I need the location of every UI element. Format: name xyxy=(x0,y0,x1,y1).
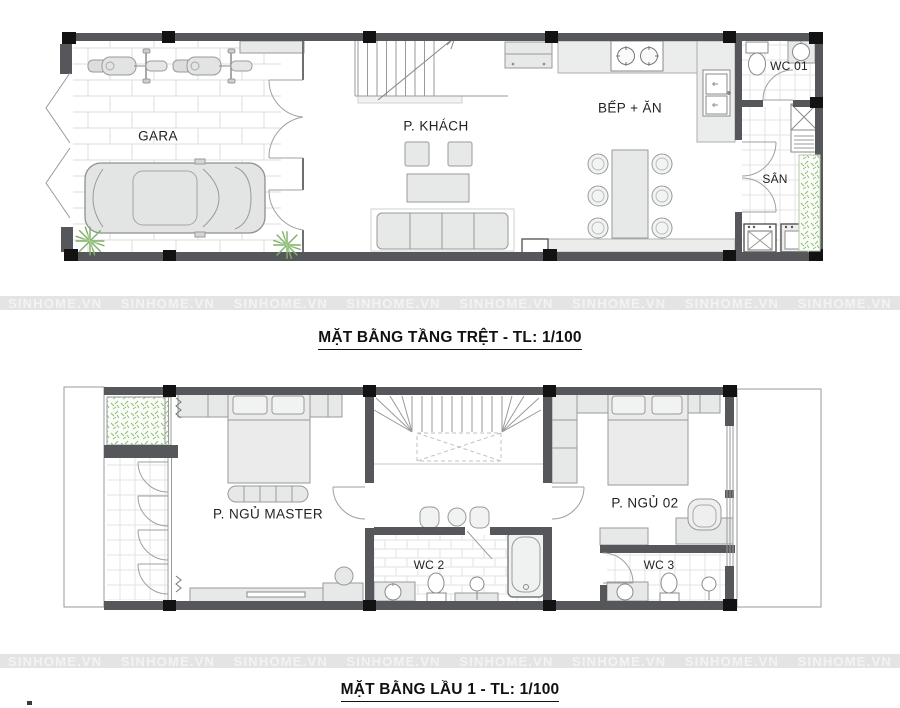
watermark-band-bottom: SINHOME.VN SINHOME.VN SINHOME.VN SINHOME… xyxy=(0,654,900,668)
watermark-text: SINHOME.VN xyxy=(346,655,440,668)
sofa xyxy=(371,209,514,251)
car xyxy=(85,159,265,237)
watermark-text: SINHOME.VN xyxy=(459,655,553,668)
watermark-text: SINHOME.VN xyxy=(121,655,215,668)
room-label-yard: SÂN xyxy=(762,172,787,186)
plant-box xyxy=(107,397,171,445)
wc3-shelf xyxy=(600,528,648,545)
ground-floor-title-text: MẶT BẰNG TẦNG TRỆT - TL: 1/100 xyxy=(318,329,581,350)
room-label-wc2: WC 2 xyxy=(414,558,445,572)
ground-floor-title: MẶT BẰNG TẦNG TRỆT - TL: 1/100 xyxy=(0,329,900,350)
room-label-wc3: WC 3 xyxy=(644,558,675,572)
first-floor-plan xyxy=(64,385,821,611)
floor-plan-drawing xyxy=(0,0,900,708)
staircase-ground xyxy=(355,37,508,103)
master-cabinet xyxy=(190,588,325,602)
right-void xyxy=(737,389,821,607)
desk xyxy=(676,499,733,544)
window-bench xyxy=(548,239,735,252)
first-floor-title-text: MẶT BẰNG LẦU 1 - TL: 1/100 xyxy=(341,681,560,702)
watermark-text: SINHOME.VN xyxy=(8,297,102,310)
bedroom2-door xyxy=(552,487,584,519)
watermark-text: SINHOME.VN xyxy=(685,297,779,310)
floor-plan-page: GARA P. KHÁCH BẾP + ĂN WC 01 SÂN P. NGỦ … xyxy=(0,0,900,708)
watermark-text: SINHOME.VN xyxy=(572,297,666,310)
garage-storage xyxy=(240,41,304,53)
room-label-kitchen: BẾP + ĂN xyxy=(598,101,662,116)
wc2-toilet xyxy=(427,573,446,602)
watermark-text: SINHOME.VN xyxy=(459,297,553,310)
watermark-text: SINHOME.VN xyxy=(234,297,328,310)
tv-cabinet xyxy=(505,42,552,68)
staircase-first xyxy=(374,396,543,464)
dining-set xyxy=(588,150,672,238)
master-door xyxy=(333,487,365,519)
watermark-text: SINHOME.VN xyxy=(121,297,215,310)
loggia-floor xyxy=(107,458,168,600)
watermark-text: SINHOME.VN xyxy=(685,655,779,668)
room-label-bedroom2: P. NGỦ 02 xyxy=(611,496,678,511)
bed-bench xyxy=(228,486,308,502)
watermark-text: SINHOME.VN xyxy=(8,655,102,668)
watermark-text: SINHOME.VN xyxy=(798,655,892,668)
room-label-garage: GARA xyxy=(138,129,178,144)
bathtub xyxy=(508,532,544,597)
left-void xyxy=(64,387,104,607)
watermark-band-top: SINHOME.VN SINHOME.VN SINHOME.VN SINHOME… xyxy=(0,296,900,310)
garage-gate xyxy=(46,73,70,218)
watermark-text: SINHOME.VN xyxy=(346,297,440,310)
room-label-living: P. KHÁCH xyxy=(403,119,468,134)
ground-floor-plan xyxy=(46,31,823,261)
watermark-text: SINHOME.VN xyxy=(798,297,892,310)
kitchen-sink xyxy=(703,70,731,116)
artifact-mark xyxy=(27,701,32,705)
armchairs xyxy=(405,142,472,166)
bedroom2-bed xyxy=(608,393,688,485)
dressing-table xyxy=(323,567,363,602)
washing-machine xyxy=(744,224,776,252)
room-label-wc1: WC 01 xyxy=(770,59,808,73)
room-label-master: P. NGỦ MASTER xyxy=(213,507,323,522)
insulation-marks xyxy=(176,398,181,592)
wc3-toilet xyxy=(660,573,679,602)
first-floor-title: MẶT BẰNG LẦU 1 - TL: 1/100 xyxy=(0,681,900,702)
watermark-text: SINHOME.VN xyxy=(572,655,666,668)
coffee-table xyxy=(407,174,469,202)
watermark-text: SINHOME.VN xyxy=(234,655,328,668)
master-bed xyxy=(228,393,310,483)
stove xyxy=(611,41,663,71)
hall-basins xyxy=(420,507,489,528)
laundry-basin xyxy=(791,104,817,152)
